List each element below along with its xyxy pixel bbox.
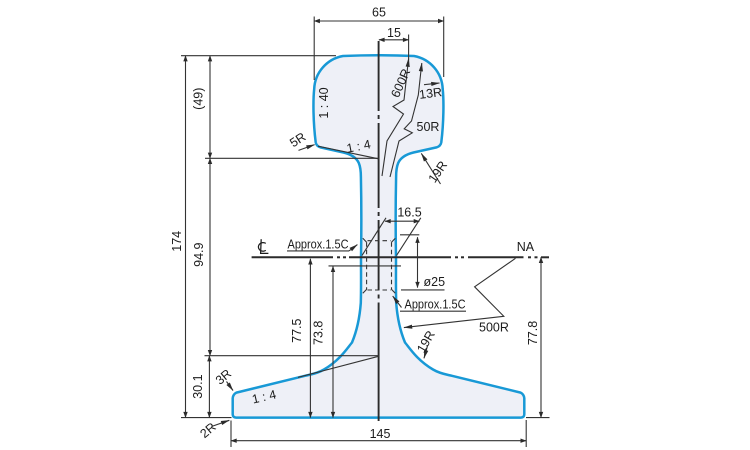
svg-text:500R: 500R <box>479 321 509 335</box>
svg-text:ø25: ø25 <box>424 275 446 289</box>
svg-text:94.9: 94.9 <box>192 242 206 266</box>
svg-text:NA: NA <box>517 240 535 254</box>
svg-text:73.8: 73.8 <box>312 321 326 345</box>
svg-text:2R: 2R <box>197 420 218 441</box>
svg-text:77.5: 77.5 <box>290 318 304 342</box>
svg-text:3R: 3R <box>213 367 234 388</box>
svg-text:19R: 19R <box>426 158 450 185</box>
svg-text:30.1: 30.1 <box>191 374 205 398</box>
svg-text:50R: 50R <box>417 120 440 134</box>
svg-text:13R: 13R <box>418 85 442 102</box>
svg-text:5R: 5R <box>287 130 308 150</box>
svg-text:Approx.1.5C: Approx.1.5C <box>288 237 349 251</box>
svg-text:145: 145 <box>370 427 391 441</box>
svg-text:19R: 19R <box>414 328 438 355</box>
svg-text:174: 174 <box>170 231 184 252</box>
svg-text:(49): (49) <box>192 88 206 110</box>
svg-text:65: 65 <box>372 6 386 20</box>
svg-text:77.8: 77.8 <box>526 321 540 345</box>
svg-text:16.5: 16.5 <box>397 206 421 220</box>
svg-text:1 : 40: 1 : 40 <box>317 87 331 118</box>
svg-text:Approx.1.5C: Approx.1.5C <box>405 298 466 312</box>
svg-text:15: 15 <box>387 26 401 40</box>
